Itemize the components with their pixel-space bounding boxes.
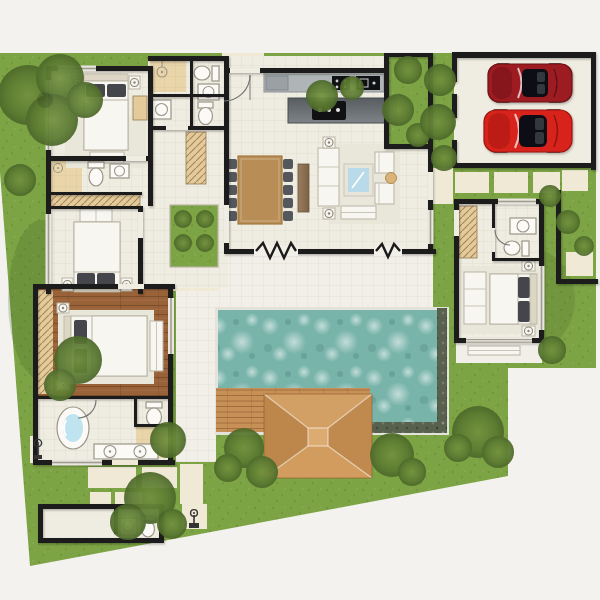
dining-chair (283, 198, 293, 208)
sports-car-dark-red (488, 63, 572, 103)
armchair (375, 183, 394, 204)
refrigerator (266, 76, 288, 90)
pillow (518, 301, 530, 322)
washbasin (152, 100, 171, 119)
dining-chair (283, 185, 293, 195)
stepping-stone (455, 172, 489, 193)
sofa (318, 148, 339, 206)
seat (535, 118, 544, 130)
toilet (147, 408, 162, 426)
shrub (196, 210, 214, 228)
seat (537, 84, 545, 94)
armchair (375, 152, 394, 173)
sala-roof (264, 394, 372, 478)
dining-chair (283, 172, 293, 182)
bed-headboard (84, 74, 128, 81)
duvet (490, 274, 518, 324)
toilet-tank (146, 402, 162, 408)
toilet (504, 241, 520, 255)
tree (150, 422, 186, 458)
duvet (74, 222, 120, 272)
tree (539, 185, 561, 207)
dresser (133, 96, 147, 120)
bed-headboard (530, 274, 537, 324)
dining-table (238, 156, 282, 224)
garage-walkway (433, 168, 453, 204)
floor-plan-image (0, 0, 600, 600)
sports-car-bright-red (484, 109, 572, 153)
toilet (89, 168, 103, 186)
shrub (196, 234, 214, 252)
pillow (518, 277, 530, 298)
pillow (107, 84, 126, 97)
tree (4, 164, 36, 196)
toilet (199, 108, 213, 125)
tree (538, 336, 566, 364)
seat (537, 72, 545, 82)
dining-chair (283, 159, 293, 169)
toilet-tank (522, 241, 529, 256)
toilet-tank (88, 162, 104, 168)
sofa (464, 272, 486, 324)
floor-plan-canvas (0, 0, 600, 600)
toilet-tank (212, 66, 219, 81)
toilet (194, 66, 210, 80)
shrub (174, 210, 192, 228)
sideboard (298, 164, 309, 212)
round-side-table (386, 173, 397, 184)
side-gate-path (566, 252, 593, 276)
dining-chair (283, 211, 293, 221)
seat (535, 132, 544, 144)
stepping-stone (180, 464, 203, 504)
stepping-stone (494, 172, 528, 193)
living-area (318, 137, 400, 224)
shrub (174, 234, 192, 252)
side-gate-path (562, 170, 588, 191)
